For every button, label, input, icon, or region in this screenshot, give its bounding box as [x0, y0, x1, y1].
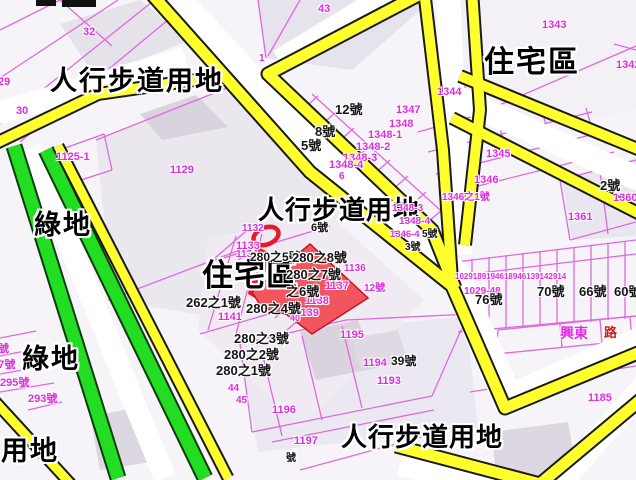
house-number: 2號: [600, 179, 620, 192]
lot-number-row-overlapping: 1029189194618946139142914: [455, 273, 566, 281]
lot-number: 1196: [272, 405, 296, 416]
house-number-clipped: 60號: [614, 285, 636, 298]
zone-label-greenland-2: 綠地: [22, 346, 80, 373]
house-number: 66號: [579, 285, 606, 298]
house-number: 280之8號: [292, 251, 347, 264]
lot-number: 45: [236, 396, 247, 406]
zone-label-residential-1: 住宅區: [484, 48, 580, 78]
lot-number: 1346之1號: [442, 193, 490, 203]
house-number-partial: 號: [286, 454, 296, 464]
lot-number-clipped: 1360: [613, 193, 636, 204]
street-name-suffix-red: 路: [604, 326, 617, 339]
lot-number: 1125-1: [56, 152, 90, 163]
lot-number: 1137: [325, 281, 349, 292]
house-number: 之6號: [286, 285, 319, 298]
map-canvas[interactable]: 人行步道用地 人行步道用地 人行步道用地 住宅區 住宅區 綠地 綠地 道用地 3…: [0, 0, 636, 480]
house-number: 280之1號: [216, 364, 271, 377]
lot-number: 1348-3: [392, 204, 423, 214]
zone-label-pedestrian-1: 人行步道用地: [50, 68, 224, 95]
house-number: 280之4號: [246, 302, 301, 315]
house-number: 295號: [0, 378, 29, 389]
lot-number: 6: [339, 172, 345, 182]
house-number: 3號: [405, 243, 421, 253]
lot-number: 1193: [377, 376, 401, 387]
lot-number: 1346: [474, 175, 498, 186]
zone-label-pedestrian-3: 人行步道用地: [341, 424, 503, 450]
lot-number: 29: [0, 77, 10, 88]
lot-number: 1348-1: [368, 130, 402, 141]
street-name-label: 興東: [560, 326, 588, 340]
house-number: 6號: [311, 223, 328, 234]
house-number: 293號: [28, 394, 57, 405]
house-number: 76號: [475, 293, 502, 306]
lot-number: 1345: [486, 149, 510, 160]
house-number: 280之2號: [224, 348, 279, 361]
lot-number: 1343: [542, 20, 566, 31]
lot-number: 1132: [242, 224, 264, 234]
lot-number: 1129: [170, 165, 194, 176]
lot-number: 32: [83, 27, 95, 38]
house-number: 5號: [422, 230, 438, 240]
lot-number-clipped: 1342: [616, 60, 636, 71]
house-number: 12號: [364, 284, 385, 294]
house-number: 39號: [391, 355, 416, 367]
house-number: 280之3號: [234, 332, 289, 345]
lot-number: 1194: [363, 358, 387, 369]
lot-number: 1141: [218, 312, 242, 323]
lot-number: 43: [318, 4, 330, 15]
lot-number: 1347: [396, 105, 420, 116]
lot-number: 1348-4: [399, 217, 430, 227]
lot-number: 1195: [340, 330, 364, 341]
lot-number: 1136: [344, 264, 366, 274]
lot-number: 1361: [568, 212, 592, 223]
zone-label-greenland-1: 綠地: [34, 212, 92, 239]
clipped-label-fragment: [36, 0, 96, 7]
lot-number: 1344: [437, 87, 461, 98]
lot-number: 1346-4: [390, 230, 420, 240]
lot-number: 44: [228, 384, 239, 394]
house-number: 262之1號: [186, 296, 241, 309]
house-number-clipped: 號: [0, 344, 9, 355]
lot-number: 1197: [294, 436, 318, 447]
lot-number: 1: [259, 54, 265, 64]
zone-label-road-land-clipped: 道用地: [0, 438, 59, 465]
house-number: 5號: [301, 139, 321, 152]
house-number-clipped: 297號: [0, 360, 15, 371]
house-number: 280之7號: [286, 268, 341, 281]
lot-number: 1185: [588, 393, 612, 404]
lot-number: 1348-4: [329, 160, 363, 171]
house-number: 12號: [335, 103, 362, 116]
lot-number: 30: [16, 106, 28, 117]
zone-label-residential-2: 住宅區: [202, 260, 298, 291]
house-number: 8號: [315, 125, 335, 138]
house-number: 70號: [537, 285, 564, 298]
